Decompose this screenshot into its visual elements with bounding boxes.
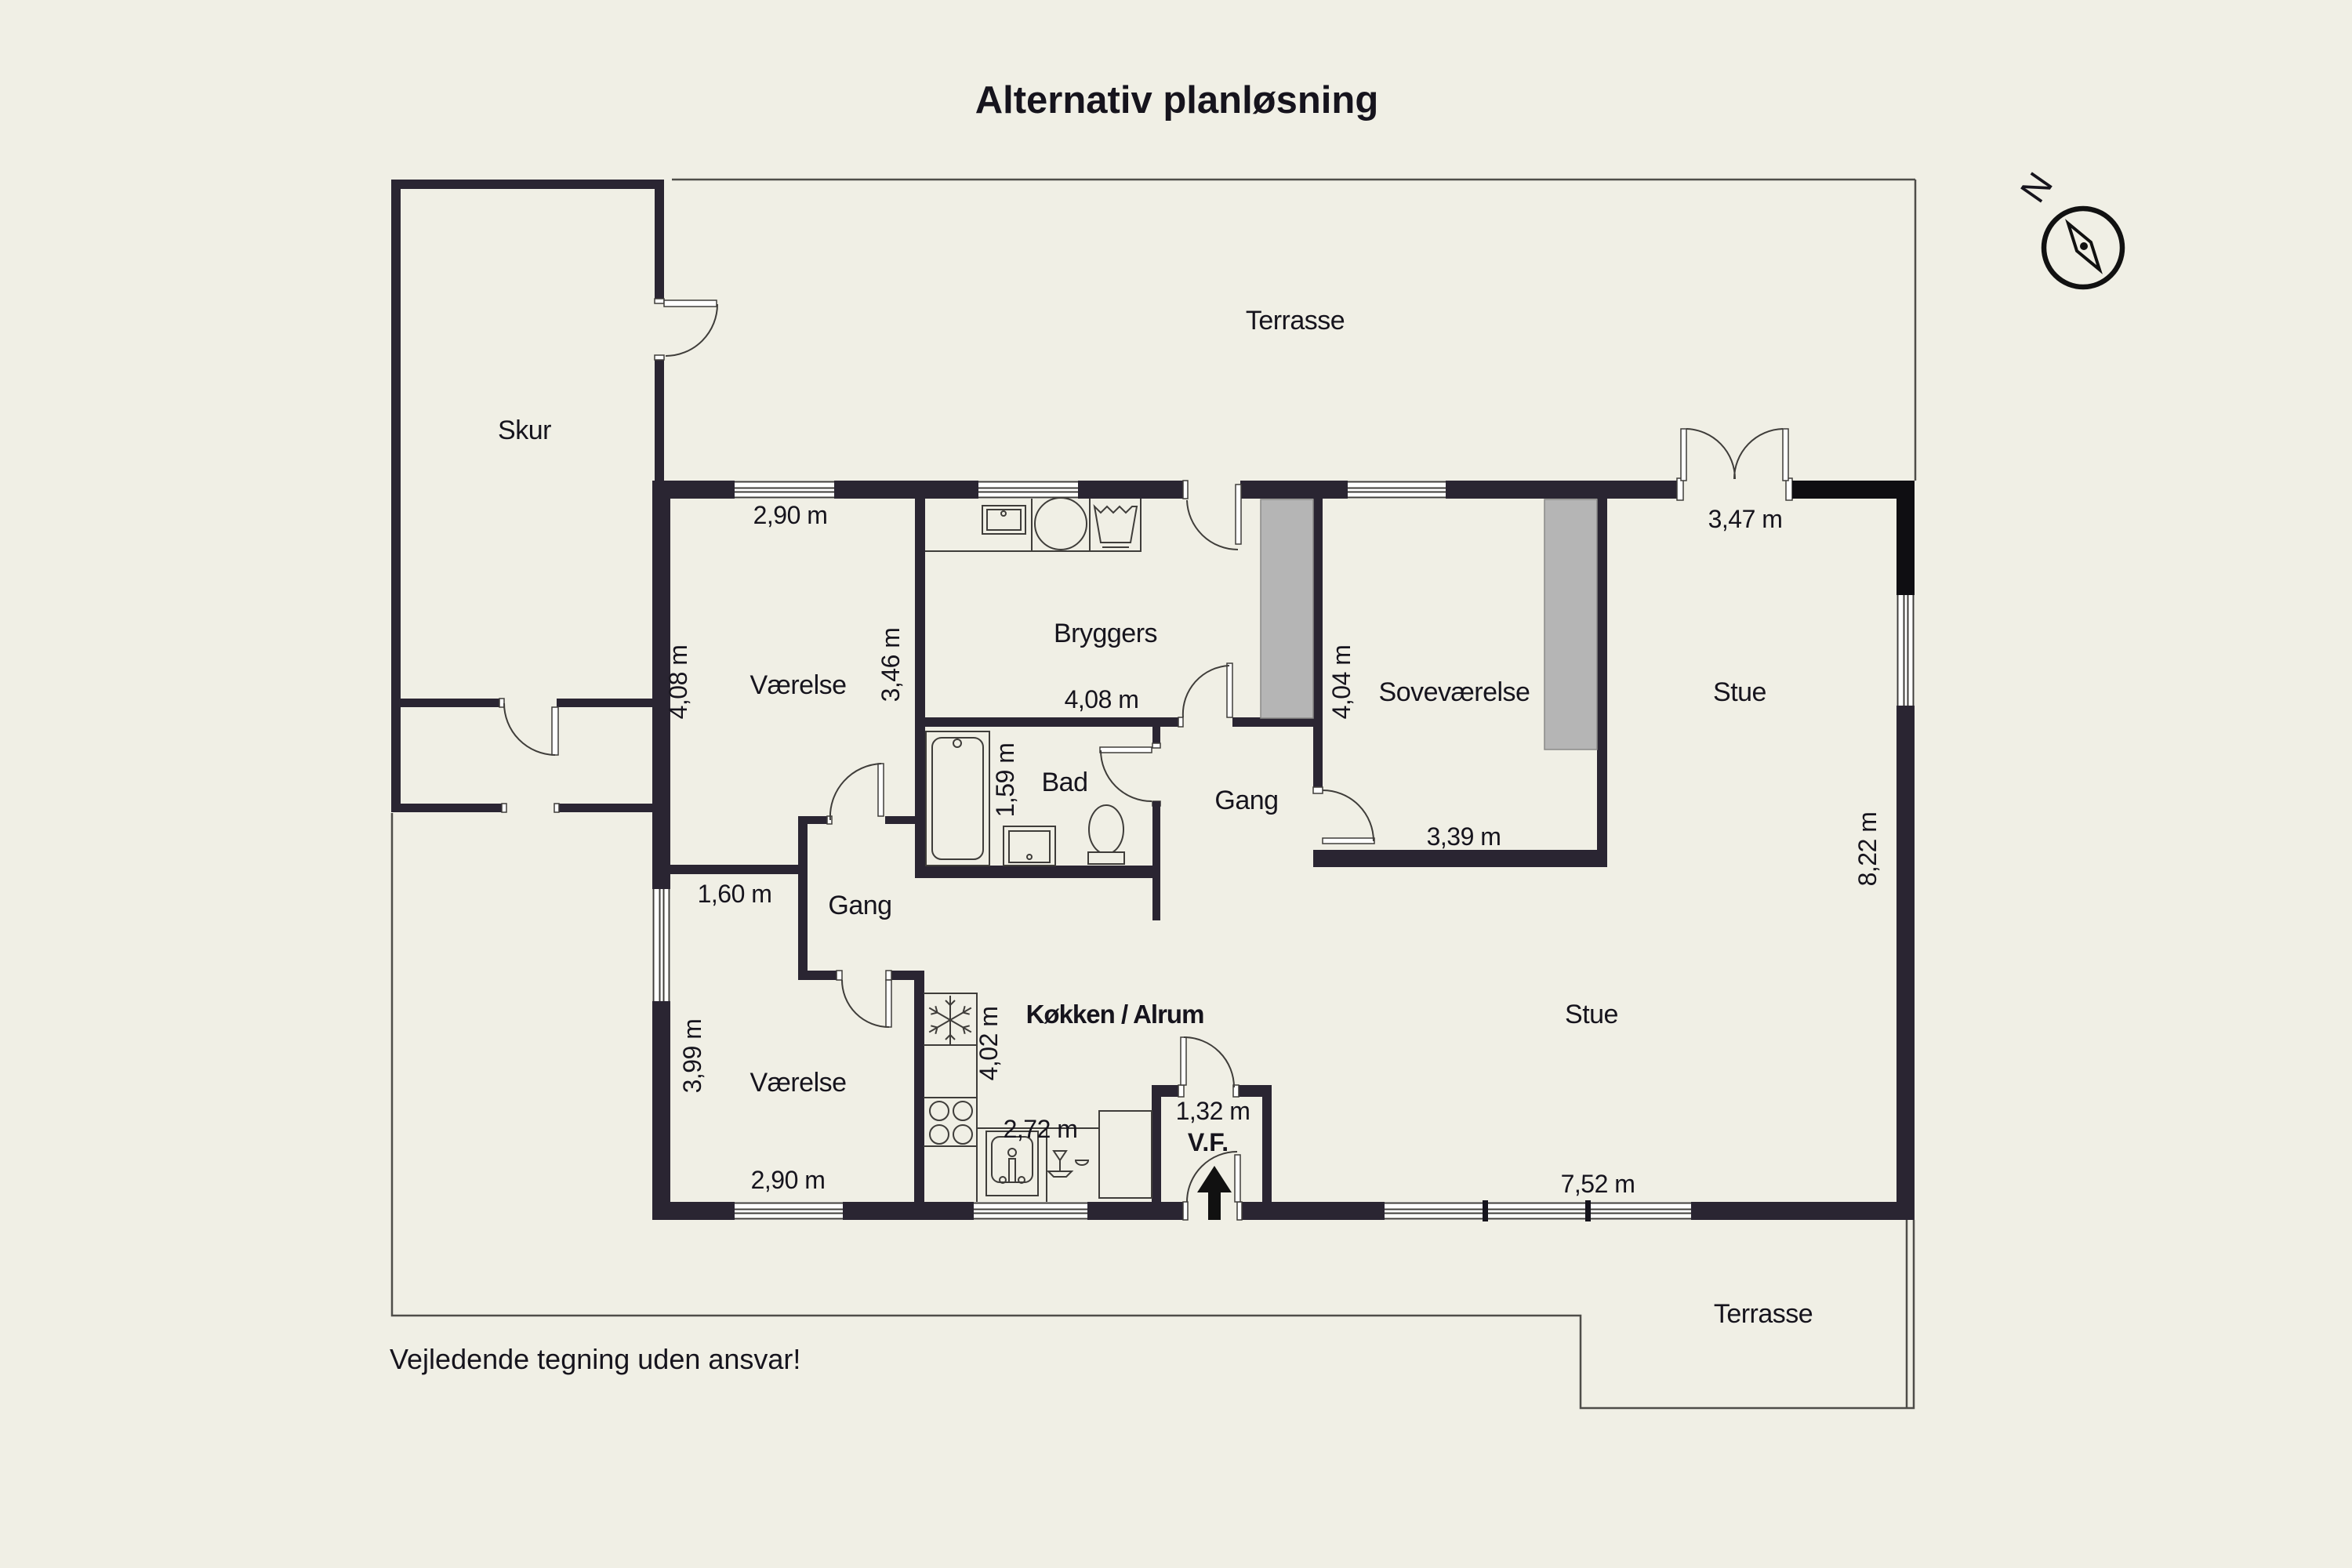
svg-text:Køkken / Alrum: Køkken / Alrum <box>1026 1000 1204 1029</box>
svg-text:2,72 m: 2,72 m <box>1004 1115 1078 1143</box>
svg-text:4,04 m: 4,04 m <box>1327 645 1356 720</box>
svg-text:Værelse: Værelse <box>750 670 846 700</box>
svg-text:Alternativ planløsning: Alternativ planløsning <box>975 79 1379 122</box>
svg-text:3,47 m: 3,47 m <box>1708 505 1783 533</box>
svg-text:1,60 m: 1,60 m <box>698 880 772 908</box>
svg-text:Terrasse: Terrasse <box>1246 306 1345 336</box>
svg-text:Værelse: Værelse <box>750 1068 846 1098</box>
svg-text:Stue: Stue <box>1713 677 1766 707</box>
svg-text:1,59 m: 1,59 m <box>991 743 1019 818</box>
svg-text:3,99 m: 3,99 m <box>678 1019 706 1094</box>
svg-text:4,08 m: 4,08 m <box>1065 685 1139 713</box>
svg-text:Terrasse: Terrasse <box>1714 1299 1813 1329</box>
svg-text:Skur: Skur <box>498 416 551 445</box>
svg-text:Bryggers: Bryggers <box>1054 619 1157 648</box>
svg-text:7,52 m: 7,52 m <box>1561 1170 1635 1198</box>
svg-text:3,39 m: 3,39 m <box>1427 822 1501 851</box>
svg-text:Stue: Stue <box>1565 1000 1618 1029</box>
svg-text:2,90 m: 2,90 m <box>753 501 828 529</box>
svg-text:2,90 m: 2,90 m <box>751 1166 826 1194</box>
svg-text:4,08 m: 4,08 m <box>664 645 692 720</box>
svg-text:V.F.: V.F. <box>1188 1128 1229 1156</box>
svg-text:4,02 m: 4,02 m <box>975 1007 1003 1081</box>
svg-text:Gang: Gang <box>828 891 891 920</box>
svg-text:8,22 m: 8,22 m <box>1853 812 1882 887</box>
svg-text:Vejledende tegning uden ansvar: Vejledende tegning uden ansvar! <box>390 1343 800 1375</box>
svg-text:Bad: Bad <box>1042 768 1088 797</box>
svg-text:1,32 m: 1,32 m <box>1176 1097 1250 1125</box>
svg-text:Gang: Gang <box>1214 786 1278 815</box>
svg-text:Soveværelse: Soveværelse <box>1379 677 1530 707</box>
svg-text:3,46 m: 3,46 m <box>877 628 905 702</box>
